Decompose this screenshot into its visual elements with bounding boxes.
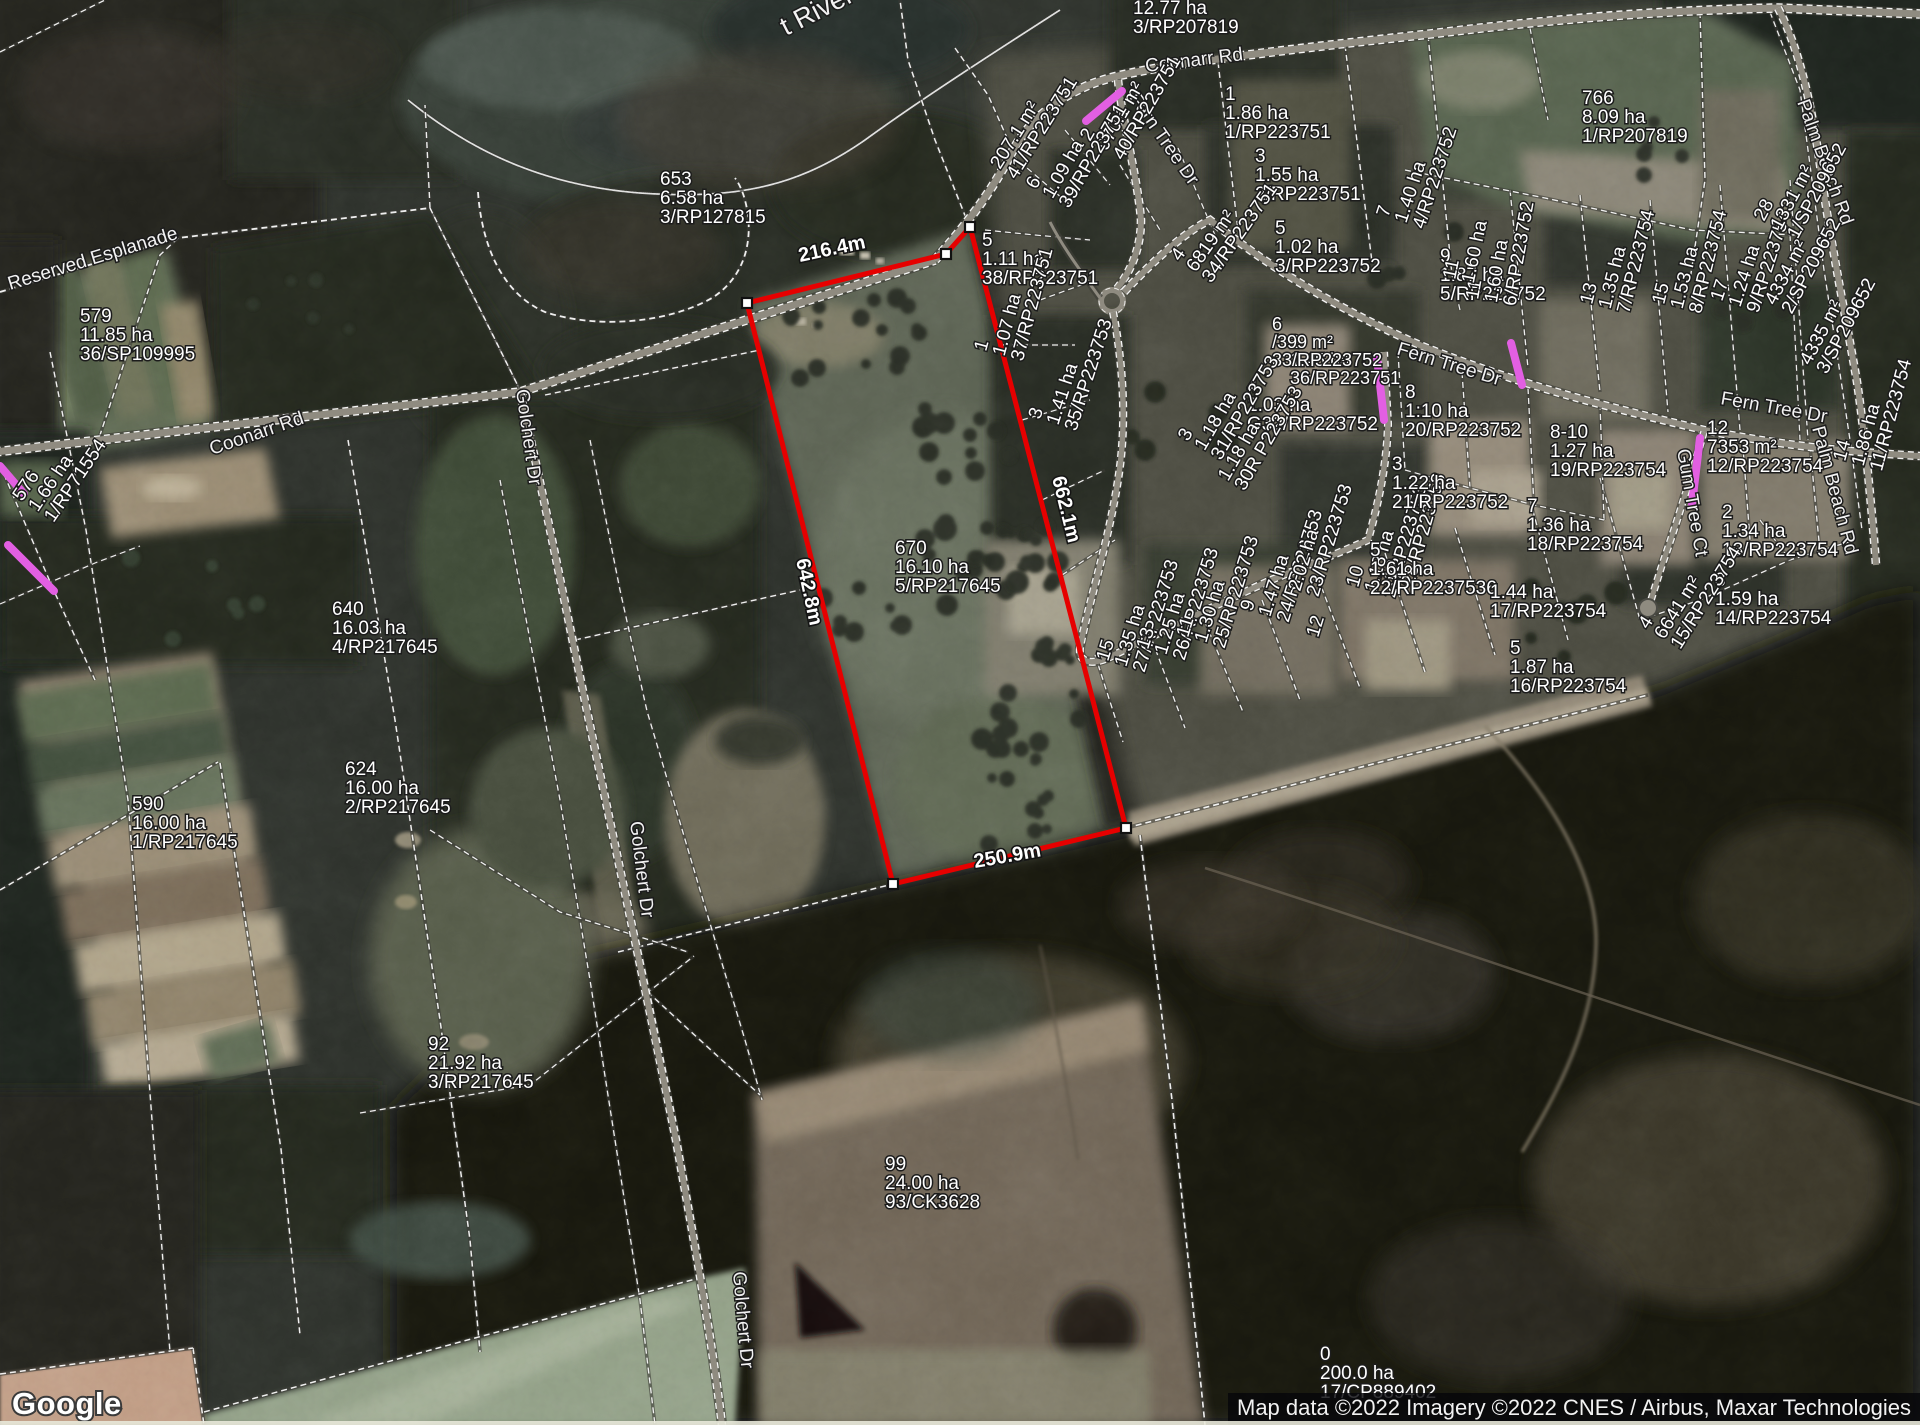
svg-text:Map data ©2022 Imagery ©2022 C: Map data ©2022 Imagery ©2022 CNES / Airb… [1237,1395,1911,1420]
svg-text:Google: Google [12,1386,122,1421]
